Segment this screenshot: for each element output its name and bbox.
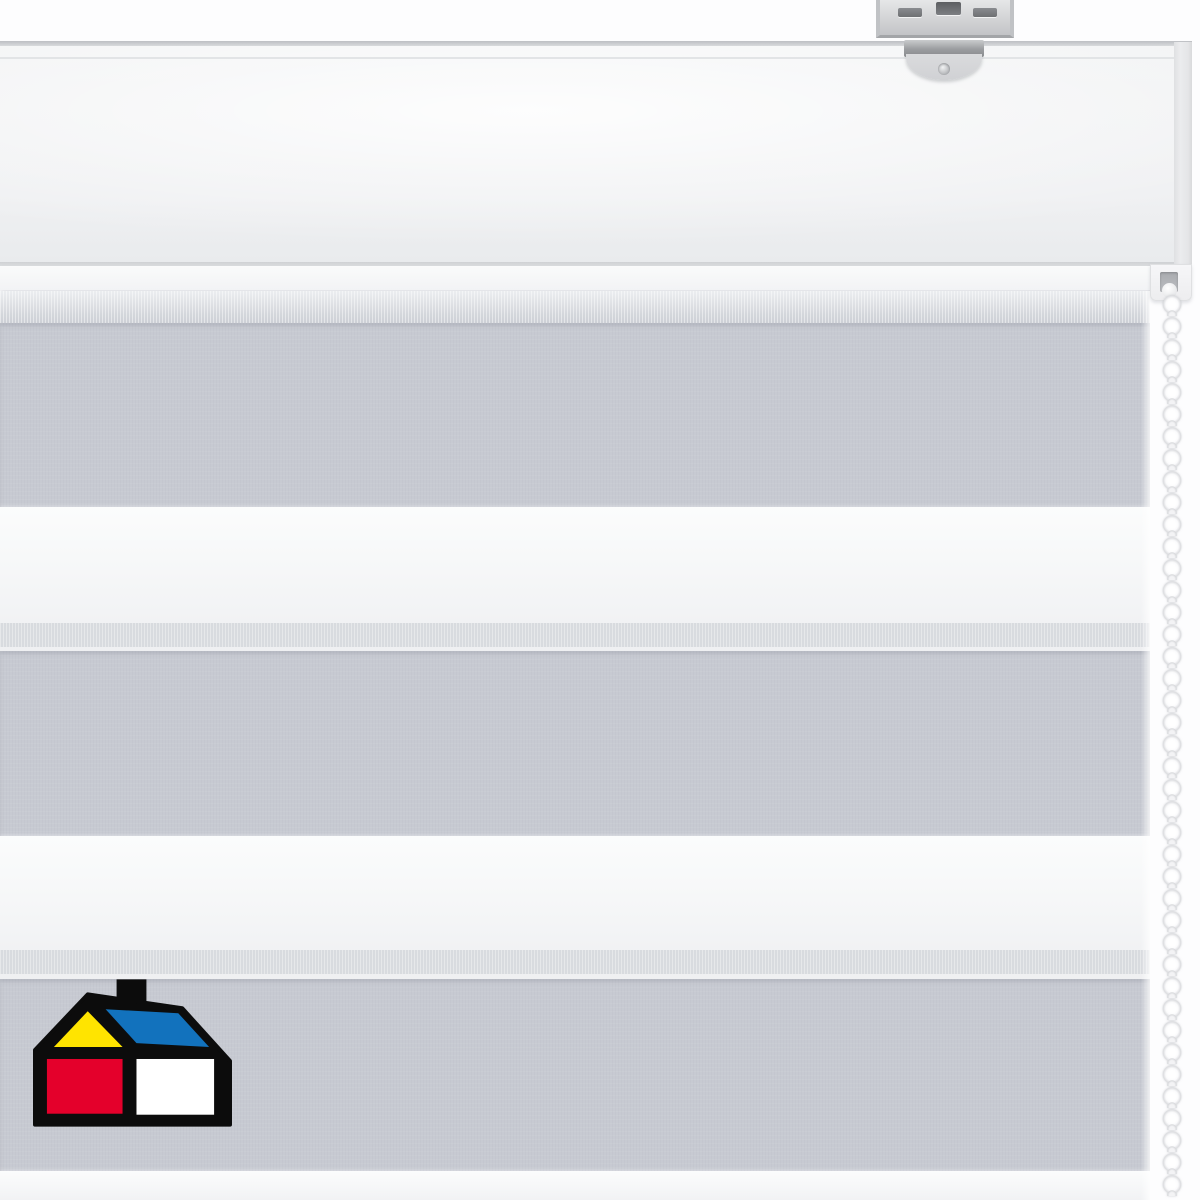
bead-chain xyxy=(1157,294,1187,1196)
logo-wall-red-icon xyxy=(47,1059,123,1114)
logo-wall-white-icon xyxy=(136,1059,214,1115)
fabric-stripe-white xyxy=(0,836,1150,950)
fabric-stripe-sheer xyxy=(0,291,1150,323)
fabric-stripe-hairline xyxy=(0,647,1150,651)
fabric-stripe-edge xyxy=(0,623,1150,647)
fabric-edge-highlight xyxy=(1141,291,1150,1200)
product-photo xyxy=(0,0,1200,1200)
headrail-end-cap xyxy=(1174,42,1192,275)
fabric-stripe-gray xyxy=(0,323,1150,507)
fabric-stripe-gray xyxy=(0,651,1150,836)
fabric-stripe-white xyxy=(0,507,1150,623)
fabric-stripe-edge xyxy=(0,950,1150,974)
fabric-stripe-white xyxy=(0,1171,1150,1200)
homecenter-logo xyxy=(33,977,232,1135)
